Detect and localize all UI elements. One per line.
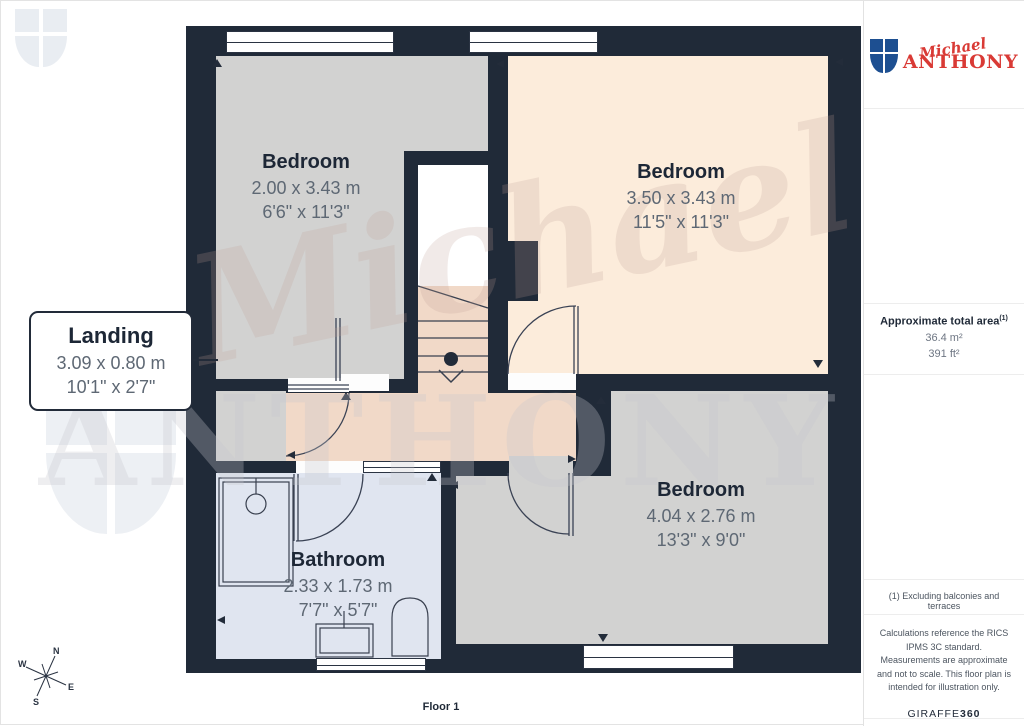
room-dim-metric: 4.04 x 2.76 m bbox=[576, 504, 826, 528]
info-sidebar: Michael ANTHONY Approximate total area(1… bbox=[863, 1, 1024, 726]
room-dim-imperial: 6'6" x 11'3" bbox=[196, 200, 416, 224]
room-name: Bedroom bbox=[576, 477, 826, 504]
compass-s: S bbox=[33, 697, 39, 707]
door-swings bbox=[286, 306, 578, 541]
giraffe360-brand: GIRAFFE360 bbox=[876, 707, 1012, 723]
room-dim-imperial: 10'1" x 2'7" bbox=[35, 375, 187, 399]
room-dim-metric: 3.50 x 3.43 m bbox=[556, 186, 806, 210]
room-dim-imperial: 7'7" x 5'7" bbox=[238, 598, 438, 622]
compass-w: W bbox=[18, 659, 27, 669]
label-bedroom-right: Bedroom 3.50 x 3.43 m 11'5" x 11'3" bbox=[556, 159, 806, 235]
disclaimer-section: Calculations reference the RICS IPMS 3C … bbox=[864, 614, 1024, 719]
label-landing-callout: Landing 3.09 x 0.80 m 10'1" x 2'7" bbox=[29, 311, 193, 411]
footnote-marker: (1) bbox=[999, 315, 1008, 322]
compass-rose: N E S W bbox=[13, 643, 93, 723]
footnote-text: (1) Excluding balconies and terraces bbox=[864, 579, 1024, 614]
room-dim-metric: 2.00 x 3.43 m bbox=[196, 176, 416, 200]
floor-label: Floor 1 bbox=[391, 701, 491, 713]
total-area-imperial: 391 ft² bbox=[864, 348, 1024, 360]
shield-watermark-small bbox=[15, 9, 67, 63]
compass-n: N bbox=[53, 646, 60, 656]
disclaimer-text: Calculations reference the RICS IPMS 3C … bbox=[876, 627, 1012, 695]
sink bbox=[316, 624, 373, 657]
room-name: Bedroom bbox=[556, 159, 806, 186]
agency-logo: Michael ANTHONY bbox=[864, 1, 1024, 109]
total-area-title: Approximate total area(1) bbox=[864, 315, 1024, 328]
label-bedroom-bottom: Bedroom 4.04 x 2.76 m 13'3" x 9'0" bbox=[576, 477, 826, 553]
shield-logo-icon bbox=[870, 39, 898, 71]
room-name: Bathroom bbox=[238, 547, 438, 574]
room-dim-metric: 3.09 x 0.80 m bbox=[35, 351, 187, 375]
label-bedroom-left: Bedroom 2.00 x 3.43 m 6'6" x 11'3" bbox=[196, 149, 416, 225]
room-dim-imperial: 13'3" x 9'0" bbox=[576, 528, 826, 552]
floorplan-page: Michael ANTHONY Bedroom 2.00 x 3.43 m 6'… bbox=[0, 0, 1024, 725]
room-name: Bedroom bbox=[196, 149, 416, 176]
room-name: Landing bbox=[35, 321, 187, 351]
compass-e: E bbox=[68, 682, 74, 692]
room-dim-metric: 2.33 x 1.73 m bbox=[238, 574, 438, 598]
shower-drain bbox=[246, 494, 266, 514]
stair-start-dot bbox=[444, 352, 458, 366]
label-bathroom: Bathroom 2.33 x 1.73 m 7'7" x 5'7" bbox=[238, 547, 438, 623]
total-area-metric: 36.4 m² bbox=[864, 332, 1024, 344]
total-area-section: Approximate total area(1) 36.4 m² 391 ft… bbox=[864, 303, 1024, 375]
room-dim-imperial: 11'5" x 11'3" bbox=[556, 210, 806, 234]
